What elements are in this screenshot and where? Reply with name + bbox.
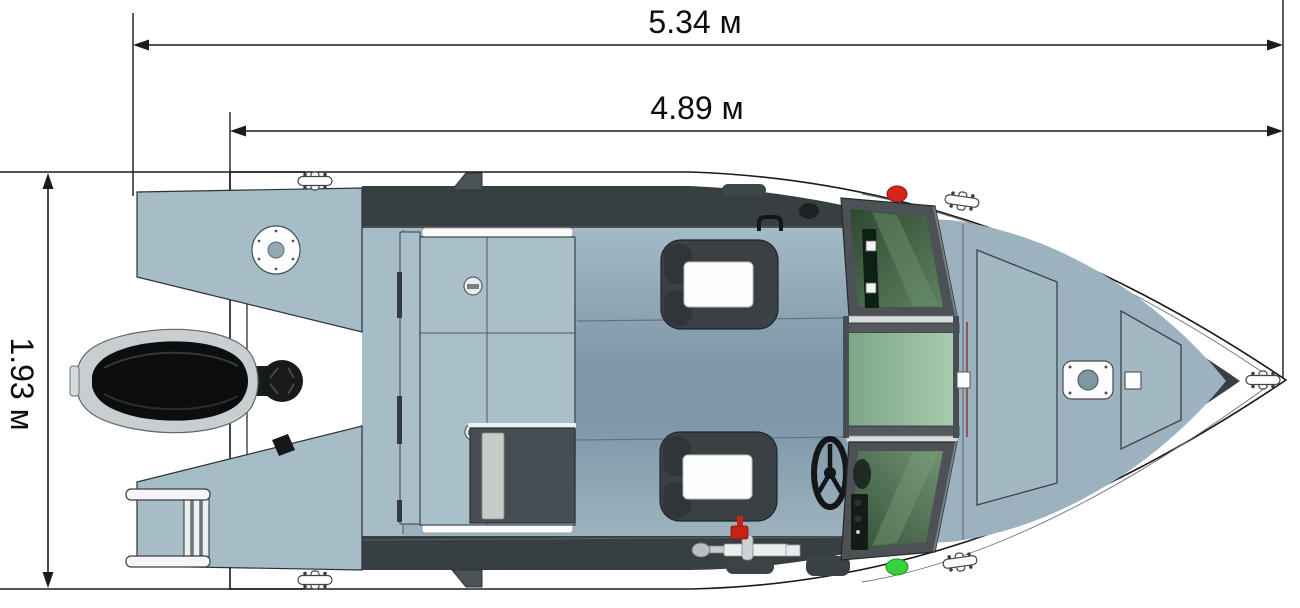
walkthrough-top-rail <box>845 323 959 333</box>
seat-cushion <box>683 455 752 499</box>
stern-bench-storage <box>397 228 576 533</box>
screw-dot <box>1105 392 1108 395</box>
engine-kill-switch <box>731 526 748 539</box>
beam-label: 1.93 м <box>4 337 40 430</box>
bow-fitting <box>1125 372 1141 389</box>
hull-length-dimension: 4.89 м <box>230 90 1283 137</box>
seat-cushion <box>684 262 753 307</box>
ladder-rail <box>126 489 210 500</box>
transom-bracket <box>397 396 402 444</box>
control-foot <box>726 558 774 574</box>
screw-dot <box>275 268 278 271</box>
boat <box>70 172 1286 589</box>
transom-bracket <box>397 500 402 522</box>
helm-gauge <box>853 459 871 489</box>
overall-length-label: 5.34 м <box>648 4 741 40</box>
instrument-dot <box>856 530 860 534</box>
hinge <box>866 283 876 293</box>
control-bracket <box>724 544 788 556</box>
driver-seat <box>660 432 777 521</box>
dimension-arrow-left <box>133 40 149 51</box>
ladder-rail <box>126 556 210 567</box>
screw-dot <box>292 240 295 243</box>
aft-deck-strip <box>362 228 403 536</box>
instrument-button <box>855 500 861 506</box>
screw-dot <box>1105 366 1108 369</box>
mount-hole <box>1078 370 1098 390</box>
wheel-hub <box>824 467 836 479</box>
walkthrough-latch <box>957 372 970 388</box>
steering-knob <box>261 360 303 402</box>
inspection-plate <box>252 226 300 274</box>
port-bow-cleat <box>944 190 980 213</box>
screw-dot <box>275 230 278 233</box>
grab-rail <box>846 316 958 323</box>
windshield-walkthrough-glass <box>849 333 955 426</box>
screw-dot <box>258 240 261 243</box>
port-nav-light <box>887 186 907 202</box>
windshield-mount-cap <box>722 184 766 196</box>
screw-dot <box>1069 366 1072 369</box>
storage-box-lid-strip <box>482 433 504 519</box>
walkthrough-bottom-rail <box>845 426 959 436</box>
screw-dot <box>258 258 261 261</box>
starboard-bow-cleat <box>942 551 978 574</box>
screw-dot <box>1069 392 1072 395</box>
latch-slot <box>467 284 479 289</box>
dimension-arrow-right <box>1267 126 1283 137</box>
boat-drawing-page: 5.34 м 4.89 м 1.93 м <box>0 0 1300 608</box>
dimension-arrow-left <box>230 126 246 137</box>
beam-dimension: 1.93 м <box>4 173 54 588</box>
dimension-arrow-top <box>43 173 54 189</box>
starboard-nav-light <box>886 559 908 575</box>
foredeck-hatch <box>977 250 1057 505</box>
transom-bracket <box>397 272 402 318</box>
gunwale-fitting <box>799 203 819 219</box>
dimension-arrow-bottom <box>43 572 54 588</box>
hinge <box>866 241 876 251</box>
overall-length-dimension: 5.34 м <box>133 4 1283 51</box>
ladder-rung <box>184 495 191 563</box>
cowl-front-latch <box>70 366 79 396</box>
boat-technical-drawing: 5.34 м 4.89 м 1.93 м <box>0 0 1300 608</box>
instrument-button <box>855 516 861 522</box>
hull-length-label: 4.89 м <box>650 90 743 126</box>
transom-board <box>400 232 420 524</box>
ladder-rung <box>202 495 209 563</box>
walkthrough-post <box>843 316 849 438</box>
ladder-rung <box>193 495 200 563</box>
control-block <box>786 545 800 556</box>
dimension-arrow-right <box>1267 40 1283 51</box>
passenger-seat <box>661 240 778 329</box>
bench-edge-trim <box>422 228 573 237</box>
plate-center-hole <box>268 242 284 258</box>
screw-dot <box>292 258 295 261</box>
throttle-knob <box>692 543 710 557</box>
